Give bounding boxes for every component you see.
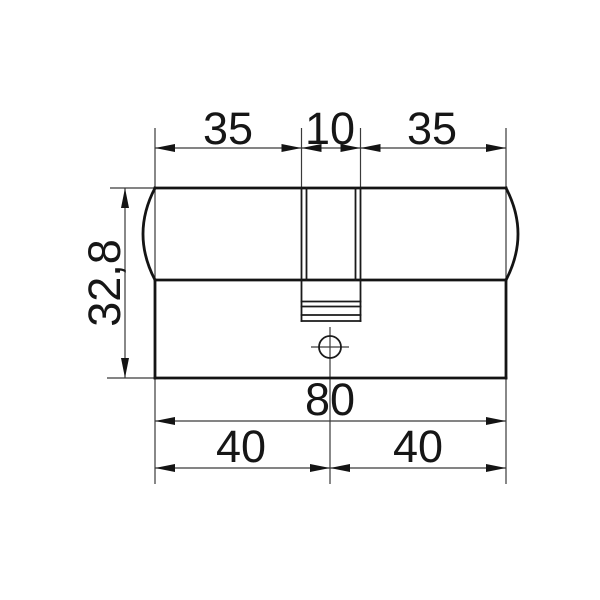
dim-label-top-right: 35	[407, 103, 457, 154]
dim-label-top-left: 35	[203, 103, 253, 154]
dim-label-height: 32,8	[79, 239, 130, 327]
dim-label-total-length: 80	[305, 374, 355, 425]
cam-ring	[302, 188, 361, 321]
barrel-right-dome	[506, 188, 518, 280]
cylinder-technical-drawing: 35 10 35 32,8 80 40 40	[0, 0, 600, 600]
dim-label-top-center: 10	[305, 103, 355, 154]
drawing-canvas: 35 10 35 32,8 80 40 40	[0, 0, 600, 600]
dimension-labels: 35 10 35 32,8 80 40 40	[79, 103, 457, 472]
dim-label-bottom-left: 40	[216, 421, 266, 472]
barrel-left-dome	[143, 188, 155, 280]
dim-label-bottom-right: 40	[393, 421, 443, 472]
